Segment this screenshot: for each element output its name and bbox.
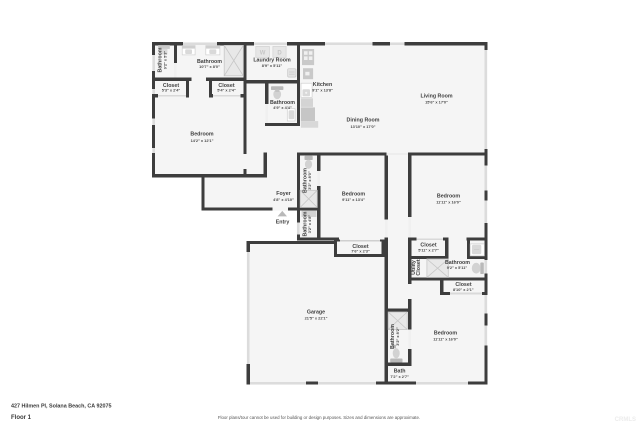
svg-text:5'4" x 2'4": 5'4" x 2'4" [217, 87, 236, 92]
svg-text:3'2" x 4'8": 3'2" x 4'8" [307, 215, 312, 234]
svg-text:Floor plans/tour cannot be use: Floor plans/tour cannot be used for buil… [218, 415, 420, 420]
svg-text:3'2" x 8'0": 3'2" x 8'0" [307, 171, 312, 190]
svg-text:14'2" x 12'1": 14'2" x 12'1" [191, 138, 214, 143]
svg-text:10'7" x 8'0": 10'7" x 8'0" [199, 64, 220, 69]
svg-text:3'2" x 8'2": 3'2" x 8'2" [395, 327, 400, 346]
svg-text:Bedroom: Bedroom [434, 331, 458, 337]
svg-text:8'10" x 2'1": 8'10" x 2'1" [453, 287, 474, 292]
svg-text:8'9" x 5'11": 8'9" x 5'11" [262, 63, 283, 68]
svg-text:5'3" x 2'4": 5'3" x 2'4" [162, 87, 181, 92]
svg-text:CRMLS: CRMLS [615, 417, 636, 423]
svg-text:Living Room: Living Room [420, 93, 452, 99]
svg-text:4'9" x 4'4": 4'9" x 4'4" [273, 105, 292, 110]
svg-text:Closet: Closet [416, 259, 422, 275]
svg-text:Bedroom: Bedroom [437, 193, 461, 199]
svg-text:11'11" x 16'0": 11'11" x 16'0" [433, 337, 458, 342]
svg-text:9'11" x 13'4": 9'11" x 13'4" [342, 197, 365, 202]
svg-text:Entry: Entry [276, 220, 290, 226]
svg-text:5'11" x 2'7": 5'11" x 2'7" [418, 248, 439, 253]
svg-text:13'10" x 17'0": 13'10" x 17'0" [350, 124, 375, 129]
svg-text:7'6" x 2'3": 7'6" x 2'3" [351, 249, 370, 254]
svg-text:Bedroom: Bedroom [190, 132, 214, 138]
svg-text:Dining Room: Dining Room [347, 118, 380, 124]
svg-text:D: D [277, 50, 282, 56]
svg-text:9'2" x 5'11": 9'2" x 5'11" [447, 265, 468, 270]
svg-text:15'6" x 17'0": 15'6" x 17'0" [425, 100, 448, 105]
svg-text:9'2" x 5'3": 9'2" x 5'3" [162, 51, 167, 70]
svg-text:11'11" x 16'0": 11'11" x 16'0" [436, 200, 461, 205]
svg-text:Floor 1: Floor 1 [11, 415, 32, 421]
svg-text:W: W [260, 50, 266, 56]
svg-text:21'5" x 22'1": 21'5" x 22'1" [305, 315, 328, 320]
svg-text:427 Hilmen Pl, Solana Beach, C: 427 Hilmen Pl, Solana Beach, CA 92075 [11, 403, 111, 409]
svg-text:7'2" x 2'7": 7'2" x 2'7" [390, 374, 409, 379]
svg-text:9'1" x 13'8": 9'1" x 13'8" [312, 88, 333, 93]
svg-text:4'8" x 4'10": 4'8" x 4'10" [273, 197, 294, 202]
